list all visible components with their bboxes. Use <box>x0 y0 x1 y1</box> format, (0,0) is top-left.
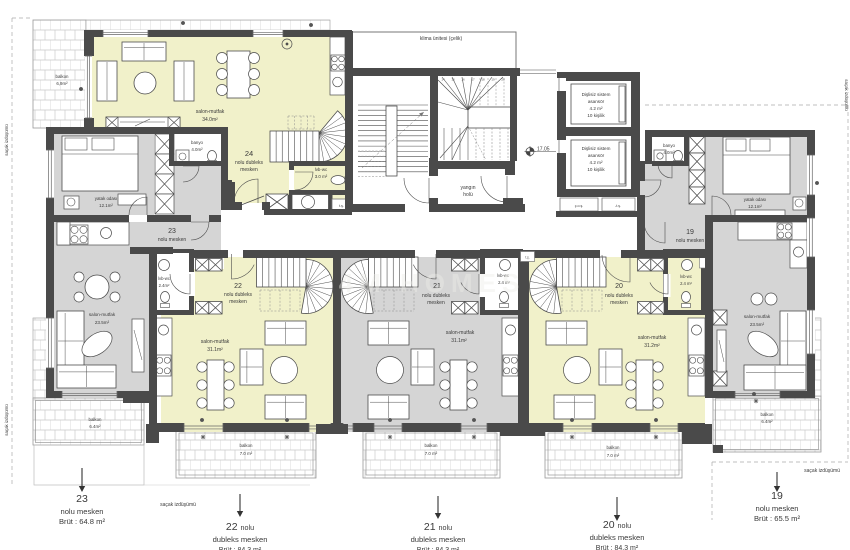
svg-text:yangın: yangın <box>460 185 475 191</box>
svg-text:saçak izdüşümü: saçak izdüşümü <box>804 468 840 474</box>
svg-text:lvb-wc: lvb-wc <box>315 167 328 172</box>
svg-text:23: 23 <box>76 493 88 505</box>
svg-text:yatak odası: yatak odası <box>95 196 117 201</box>
svg-text:23.5m²: 23.5m² <box>95 320 110 325</box>
svg-text:7.0 m²: 7.0 m² <box>607 453 620 458</box>
svg-text:nolu mesken: nolu mesken <box>158 237 187 243</box>
svg-text:balkon: balkon <box>89 417 102 422</box>
svg-text:17.05: 17.05 <box>537 147 550 153</box>
svg-text:18: 18 <box>481 78 485 82</box>
svg-text:22: 22 <box>234 283 242 290</box>
svg-text:3.0 m²: 3.0 m² <box>315 174 328 179</box>
svg-text:31.1m²: 31.1m² <box>207 347 223 353</box>
svg-text:Dişlisiz sistem: Dişlisiz sistem <box>582 146 611 151</box>
svg-text:10 kişilik: 10 kişilik <box>587 113 605 118</box>
svg-text:14: 14 <box>441 78 445 82</box>
svg-text:balkon: balkon <box>240 443 253 448</box>
svg-text:12.1m²: 12.1m² <box>748 204 762 209</box>
svg-text:20 nolu: 20 nolu <box>603 519 631 531</box>
svg-text:Brüt : 64.8 m²: Brüt : 64.8 m² <box>59 517 105 526</box>
svg-text:t.ş.: t.ş. <box>525 256 529 260</box>
svg-text:4.0m²: 4.0m² <box>191 147 203 152</box>
svg-text:-t.ş.: -t.ş. <box>615 204 621 208</box>
svg-text:21 nolu: 21 nolu <box>424 521 452 533</box>
svg-text:6.4m²: 6.4m² <box>89 424 101 429</box>
svg-text:banyo: banyo <box>191 140 204 145</box>
svg-text:4M HOMES: 4M HOMES <box>339 268 526 298</box>
svg-text:salon-mutfak: salon-mutfak <box>638 335 667 341</box>
svg-text:31.2m²: 31.2m² <box>644 343 660 349</box>
svg-text:2.4m²: 2.4m² <box>159 283 170 288</box>
svg-text:17: 17 <box>471 78 475 82</box>
svg-text:salon-mutfak: salon-mutfak <box>196 109 225 115</box>
svg-text:20: 20 <box>615 283 623 290</box>
svg-text:Dişlisiz sistem: Dişlisiz sistem <box>582 92 611 97</box>
svg-text:23: 23 <box>168 228 176 235</box>
svg-text:6.4m²: 6.4m² <box>761 419 773 424</box>
svg-text:nolu mesken: nolu mesken <box>755 504 798 513</box>
svg-text:mesken: mesken <box>229 299 247 305</box>
svg-text:mesken: mesken <box>240 167 258 173</box>
svg-text:asansör: asansör <box>588 99 605 104</box>
svg-text:23.5m²: 23.5m² <box>750 322 765 327</box>
svg-text:12.1m²: 12.1m² <box>99 203 113 208</box>
svg-text:holü: holü <box>463 192 473 198</box>
svg-text:ç.o.ş.: ç.o.ş. <box>575 204 584 208</box>
svg-text:saçak izdüşümü: saçak izdüşümü <box>4 404 9 436</box>
svg-text:nolu dubleks: nolu dubleks <box>605 293 634 299</box>
svg-text:balkon: balkon <box>425 443 438 448</box>
svg-text:Brüt : 84.3 m²: Brüt : 84.3 m² <box>596 545 639 550</box>
svg-text:nolu dubleks: nolu dubleks <box>224 292 253 298</box>
svg-text:balkon: balkon <box>761 412 774 417</box>
svg-text:banyo: banyo <box>663 143 676 148</box>
svg-text:6,9m²: 6,9m² <box>56 81 68 86</box>
svg-text:31.1m²: 31.1m² <box>451 338 467 344</box>
svg-text:19: 19 <box>771 490 783 502</box>
svg-text:4.2 m²: 4.2 m² <box>589 160 602 165</box>
svg-text:lvb-wc: lvb-wc <box>158 276 170 281</box>
svg-text:dubleks mesken: dubleks mesken <box>590 533 645 542</box>
svg-text:dubleks mesken: dubleks mesken <box>411 535 466 544</box>
svg-text:t.ş.: t.ş. <box>339 204 344 208</box>
svg-text:4.2 m²: 4.2 m² <box>589 106 602 111</box>
svg-text:nolu mesken: nolu mesken <box>60 507 103 516</box>
svg-text:Brüt : 65.5 m²: Brüt : 65.5 m² <box>754 514 800 523</box>
svg-text:salon-mutfak: salon-mutfak <box>201 339 230 345</box>
svg-text:asansör: asansör <box>588 153 605 158</box>
svg-text:saçak izdüşümü: saçak izdüşümü <box>4 124 9 156</box>
svg-text:salon-mutfak: salon-mutfak <box>89 312 116 317</box>
svg-text:7.0 m²: 7.0 m² <box>425 451 438 456</box>
svg-text:yatak odası: yatak odası <box>744 197 766 202</box>
svg-text:mesken: mesken <box>427 300 445 306</box>
svg-text:dubleks mesken: dubleks mesken <box>213 535 268 544</box>
svg-text:19: 19 <box>686 229 694 236</box>
svg-text:balkon: balkon <box>56 74 69 79</box>
svg-text:24: 24 <box>245 149 253 158</box>
svg-text:34.0m²: 34.0m² <box>202 117 218 123</box>
svg-text:mesken: mesken <box>610 300 628 306</box>
svg-text:saçak izdüşümü: saçak izdüşümü <box>160 502 196 508</box>
svg-text:saçak izdüşümü: saçak izdüşümü <box>844 79 849 111</box>
svg-text:20: 20 <box>501 78 505 82</box>
svg-text:lvb-wc: lvb-wc <box>680 274 692 279</box>
svg-text:19: 19 <box>491 78 495 82</box>
svg-text:nolu mesken: nolu mesken <box>676 238 705 244</box>
svg-text:7.0 m²: 7.0 m² <box>240 451 253 456</box>
svg-text:klima ünitesi (çelik): klima ünitesi (çelik) <box>420 36 463 42</box>
svg-text:nolu dubleks: nolu dubleks <box>235 160 264 166</box>
svg-text:16: 16 <box>461 78 465 82</box>
svg-text:22 nolu: 22 nolu <box>226 521 254 533</box>
svg-text:4.0m²: 4.0m² <box>663 150 675 155</box>
svg-text:2.4 m²: 2.4 m² <box>680 281 692 286</box>
svg-text:10 kişilik: 10 kişilik <box>587 167 605 172</box>
svg-text:15: 15 <box>451 78 455 82</box>
svg-text:balkon: balkon <box>607 445 620 450</box>
svg-text:salon-mutfak: salon-mutfak <box>446 330 475 336</box>
svg-text:salon-mutfak: salon-mutfak <box>744 314 771 319</box>
